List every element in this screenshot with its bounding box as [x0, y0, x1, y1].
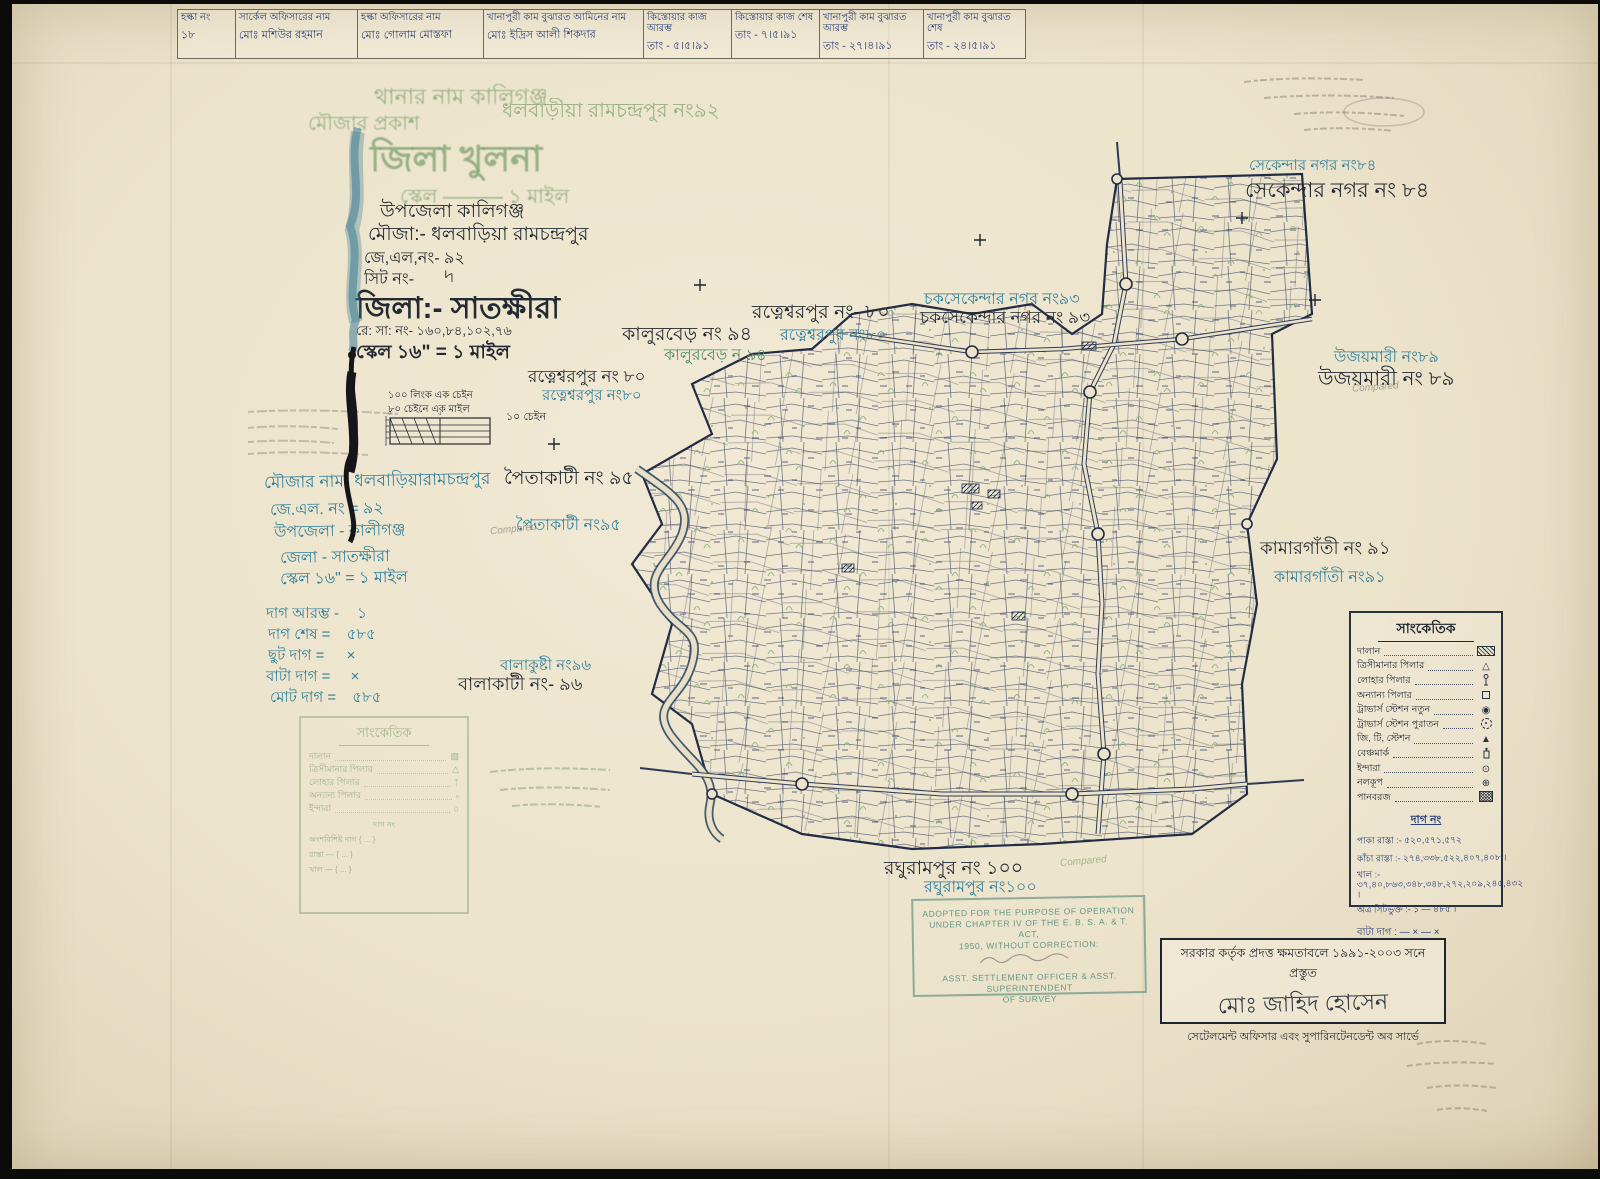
legend-dag-heading: দাগ নং	[1357, 811, 1495, 830]
header-cell: কিস্তোয়ার কাজ শেষ তাং - ৭।৫।৯১	[731, 10, 819, 58]
dag-line-khal: খাল :- ৩৭,৪০,৮৬৩,৩৪৮,৩৪৮,২৭২,২০৯,২৪৫,৪৩২…	[1357, 868, 1495, 899]
header-table: হল্কা নং ১৮ সার্কেল অফিসারের নাম মোঃ মশি…	[177, 9, 1026, 59]
faded-dag-heading: দাগ নং	[309, 819, 459, 830]
header-label: খানাপুরী কাম বুঝারত আরম্ভ	[823, 12, 920, 34]
header-value: মোঃ গোলাম মোস্তফা	[361, 25, 480, 45]
label-kamargati-teal: কামারগাঁতী নং৯১	[1274, 564, 1386, 591]
header-value: তাং - ২৭।৪।৯১	[823, 37, 920, 57]
well-symbol-icon: ⊙	[1477, 764, 1495, 775]
traverse-new-symbol-icon: ◉	[1477, 705, 1495, 716]
legend-item: বেঞ্চমার্ক	[1357, 747, 1495, 762]
dag-total-label: মোট দাগ =	[270, 689, 336, 706]
header-label: কিস্তোয়ার কাজ আরম্ভ	[647, 12, 728, 34]
gt-station-symbol-icon: ▲	[1477, 734, 1495, 745]
dag-line-kacha-rasta: কাঁচা রাস্তা :- ২৭৪,৩৩৮,৫২২,৪০৭,৪০৮ ।	[1357, 850, 1495, 866]
officer-signature-squiggle	[974, 950, 1084, 968]
legend-item-label: অন্যান্য পিলার	[1357, 689, 1412, 704]
header-label: খানাপুরী কাম বুঝারত শেষ	[927, 12, 1022, 34]
legend-item: নলকূপ⊕	[1357, 776, 1495, 791]
authority-statement: সরকার কর্তৃক প্রদত্ত ক্ষমতাবলে ১৯৯১-২০০৩…	[1168, 945, 1438, 985]
header-value: মোঃ মশিউর রহমান	[239, 25, 354, 45]
dotted-leader	[1387, 780, 1473, 788]
iron-pillar-symbol-icon	[1477, 674, 1495, 689]
scalebar-label: ১০ চেইন	[506, 408, 546, 427]
dag-start-label: দাগ আরম্ভ -	[266, 605, 339, 622]
parcel-texture-overlay	[542, 134, 1392, 894]
header-label: কিস্তোয়ার কাজ শেষ	[735, 12, 816, 23]
dag-chhut-value: ×	[347, 647, 356, 664]
header-label: হল্কা অফিসারের নাম	[361, 12, 480, 23]
boundary-pillar-symbol-icon: △	[1477, 661, 1495, 672]
legend-item-label: ইন্দারা	[1357, 762, 1380, 777]
header-value: মোঃ ইদ্রিস আলী শিকদার	[487, 25, 640, 45]
legend-item: ইন্দারা⊙	[1357, 762, 1495, 777]
tubewell-symbol-icon: ⊕	[1477, 778, 1495, 789]
faded-legend-title: সাংকেতিক	[339, 724, 429, 746]
dotted-leader	[1393, 750, 1473, 758]
header-cell: খানাপুরী কাম বুঝারত আরম্ভ তাং - ২৭।৪।৯১	[819, 10, 923, 58]
header-cell: কিস্তোয়ার কাজ আরম্ভ তাং - ৫।৫।৯১	[643, 10, 731, 58]
legend-item-label: ট্রাভার্স স্টেশন পুরাতন	[1357, 718, 1439, 733]
legend-item: অন্যান্য পিলার	[1357, 689, 1495, 704]
dotted-leader	[1415, 677, 1473, 685]
header-cell: সার্কেল অফিসারের নাম মোঃ মশিউর রহমান	[235, 10, 357, 58]
legend-item: লোহার পিলার	[1357, 674, 1495, 689]
adopted-stamp: ADOPTED FOR THE PURPOSE OF OPERATION UND…	[911, 895, 1147, 997]
legend-item-label: জি, টি, স্টেশন	[1357, 732, 1410, 747]
faded-dag-line: রাস্তা — { ... }	[309, 849, 459, 860]
dag-chhut-label: ছুট দাগ =	[268, 647, 324, 664]
authority-box: সরকার কর্তৃক প্রদত্ত ক্ষমতাবলে ১৯৯১-২০০৩…	[1160, 938, 1446, 1024]
dotted-leader	[335, 753, 446, 761]
faded-legend-item: অন্যান্য পিলার▫	[309, 789, 459, 802]
legend-item-label: ট্রাভার্স স্টেশন নতুন	[1357, 703, 1430, 718]
pencil-notes-green	[482, 760, 642, 814]
legend-item: ট্রাভার্স স্টেশন পুরাতন	[1357, 718, 1495, 733]
header-cell: খানাপুরী কাম বুঝারত শেষ তাং - ২৪।৫।৯১	[923, 10, 1025, 58]
legend-item-label: ত্রিসীমানার পিলার	[1357, 659, 1424, 674]
scanned-map-sheet: হল্কা নং ১৮ সার্কেল অফিসারের নাম মোঃ মশি…	[0, 0, 1600, 1179]
legend-box-faded: সাংকেতিক দালান▨ ত্রিসীমানার পিলার△ লোহার…	[299, 716, 469, 914]
dotted-leader	[364, 779, 450, 787]
dag-total-value: ৫৮৫	[352, 689, 381, 706]
dotted-leader	[335, 805, 449, 813]
legend-item: ত্রিসীমানার পিলার△	[1357, 660, 1495, 675]
header-value: তাং - ৫।৫।৯১	[647, 37, 728, 57]
dotted-leader	[365, 792, 452, 800]
dotted-leader	[1416, 692, 1473, 700]
map-drawing	[542, 134, 1392, 894]
teal-scale: স্কেল ১৬ʺ = ১ মাইল	[280, 564, 408, 593]
stamp-mouza-name: ধলবাড়ীয়া রামচন্দ্রপুর নং৯২	[502, 96, 720, 129]
dag-start-value: ১	[357, 605, 367, 622]
ink-flourish	[334, 122, 384, 552]
faded-dag-line: অংশবিশিষ্ট দাগ { ... }	[309, 834, 459, 845]
iron-pillar-symbol-icon: ᛏ	[454, 778, 459, 788]
header-cell: হল্কা নং ১৮	[177, 10, 235, 58]
legend-item: জি, টি, স্টেশন▲	[1357, 733, 1495, 748]
label-ratneshwarpur-left-teal: রত্নেশ্বরপুর নং৮০	[542, 384, 642, 409]
legend-item-label: বেঞ্চমার্ক	[1357, 747, 1389, 762]
boundary-pillar-symbol-icon: △	[452, 764, 459, 775]
traverse-old-symbol-icon	[1477, 718, 1495, 732]
dotted-leader	[1395, 794, 1473, 802]
dotted-leader	[1434, 707, 1473, 715]
legend-item: পানবরজ	[1357, 791, 1495, 806]
legend-item-label: দালান	[1357, 645, 1380, 660]
dotted-leader	[377, 766, 448, 774]
header-value: তাং - ২৪।৫।৯১	[927, 37, 1022, 57]
dag-total: মোট দাগ = ৫৮৫	[270, 686, 381, 711]
other-pillar-symbol-icon: ▫	[456, 791, 459, 801]
building-symbol-icon	[1477, 646, 1495, 659]
legend-item: ট্রাভার্স স্টেশন নতুন◉	[1357, 703, 1495, 718]
legend-box: সাংকেতিক দালান ত্রিসীমানার পিলার△ লোহার …	[1349, 611, 1503, 907]
other-pillar-symbol-icon	[1477, 691, 1495, 702]
paper: হল্কা নং ১৮ সার্কেল অফিসারের নাম মোঃ মশি…	[12, 4, 1598, 1169]
header-value: ১৮	[181, 26, 232, 45]
header-label: হল্কা নং	[181, 12, 232, 23]
betel-garden-symbol-icon	[1477, 791, 1495, 805]
header-label: খানাপুরী কাম বুঝারত আমিনের নাম	[487, 12, 640, 23]
faded-item-label: ইন্দারা	[309, 801, 331, 816]
dag-end-value: ৫৮৫	[347, 626, 376, 643]
label-sekandar-nagar-black: সেকেন্দার নগর নং ৮৪	[1245, 174, 1429, 209]
legend-item-label: লোহার পিলার	[1357, 674, 1411, 689]
label-chak-sekandar-black: চকসেকেন্দার নগর নং ৯৩	[920, 305, 1090, 333]
settlement-officer-signature: মোঃ জাহিদ হোসেন	[1168, 983, 1439, 1027]
dotted-leader	[1384, 648, 1473, 656]
dotted-leader	[1414, 736, 1473, 744]
header-cell: হল্কা অফিসারের নাম মোঃ গোলাম মোস্তফা	[357, 10, 483, 58]
legend-item-label: নলকূপ	[1357, 776, 1383, 791]
well-symbol-icon: ○	[454, 804, 459, 814]
label-kalurber-green: কালুরবেড় ন ৯৪	[664, 342, 767, 369]
label-ratneshwarpur-upper-teal: রত্নেশ্বরপুর নং৮০	[780, 322, 886, 349]
building-symbol-icon: ▨	[450, 751, 459, 762]
header-value: তাং - ৭।৫।৯১	[735, 26, 816, 46]
dag-bata-label: বাটা দাগ =	[266, 668, 330, 685]
dotted-leader	[1443, 721, 1473, 729]
pencil-notes-bottom-right	[1397, 1032, 1527, 1132]
dag-bata-value: ×	[351, 668, 360, 685]
pencil-notes-top-right	[1234, 72, 1469, 152]
legend-item: দালান	[1357, 645, 1495, 660]
label-balakati-black: বালাকাটী নং- ৯৬	[458, 670, 583, 701]
dag-line-sheet-range: অত্র সিটভুক্ত :- ১ — ৪৮৫ ।	[1357, 901, 1495, 917]
faded-dag-line: খাল — { ... }	[309, 864, 459, 875]
legend-title: সাংকেতিক	[1378, 617, 1475, 642]
header-label: সার্কেল অফিসারের নাম	[239, 12, 354, 23]
header-cell: খানাপুরী কাম বুঝারত আমিনের নাম মোঃ ইদ্রি…	[483, 10, 643, 58]
dag-end-label: দাগ শেষ =	[268, 626, 330, 643]
fold-crease	[12, 62, 1598, 64]
faded-legend-item: ইন্দারা○	[309, 802, 459, 815]
legend-item-label: পানবরজ	[1357, 791, 1391, 806]
label-paitakati-black: পৈতাকাটী নং ৯৫	[504, 464, 634, 496]
dag-line-paka-rasta: পাকা রাস্তা :- ৫২০,৫৭১,৫৭২	[1357, 832, 1495, 848]
dotted-leader	[1428, 663, 1473, 671]
benchmark-symbol-icon	[1477, 747, 1495, 762]
label-kamargati-black: কামারগাঁতী নং ৯১	[1260, 534, 1390, 565]
fold-crease	[170, 4, 172, 1169]
dotted-leader	[1384, 765, 1473, 773]
